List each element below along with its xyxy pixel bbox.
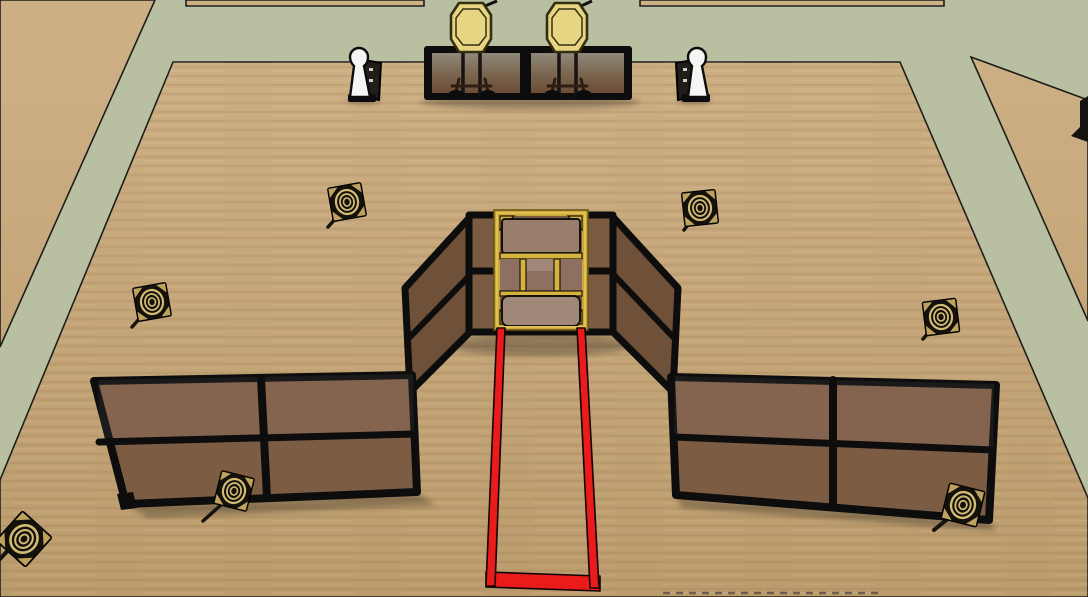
port-window-left: [500, 259, 520, 291]
port-lower-panel: [502, 296, 580, 326]
mini-target-4[interactable]: [922, 298, 960, 339]
port-mullion-left: [520, 259, 526, 291]
mini-target-2[interactable]: [681, 189, 718, 230]
port-window-top-rail: [500, 253, 582, 259]
port-mullion-right: [554, 259, 560, 291]
distant-bay-strip-left: [186, 0, 424, 6]
port-header-panel: [502, 219, 580, 253]
shooting-port[interactable]: [494, 210, 588, 330]
stage-viewport[interactable]: [0, 0, 1088, 597]
port-window-mid-light: [526, 259, 554, 271]
port-window-right: [560, 259, 582, 291]
distant-bay-strip-right: [640, 0, 944, 6]
bolt-icon: [369, 79, 373, 82]
port-structure-shadow: [449, 334, 633, 356]
left-wall[interactable]: [94, 374, 417, 510]
stage-3d-scene[interactable]: [0, 0, 1088, 597]
bolt-icon: [683, 68, 687, 71]
fault-line-bottom: [486, 572, 600, 591]
bolt-icon: [369, 68, 373, 71]
bolt-icon: [683, 79, 687, 82]
